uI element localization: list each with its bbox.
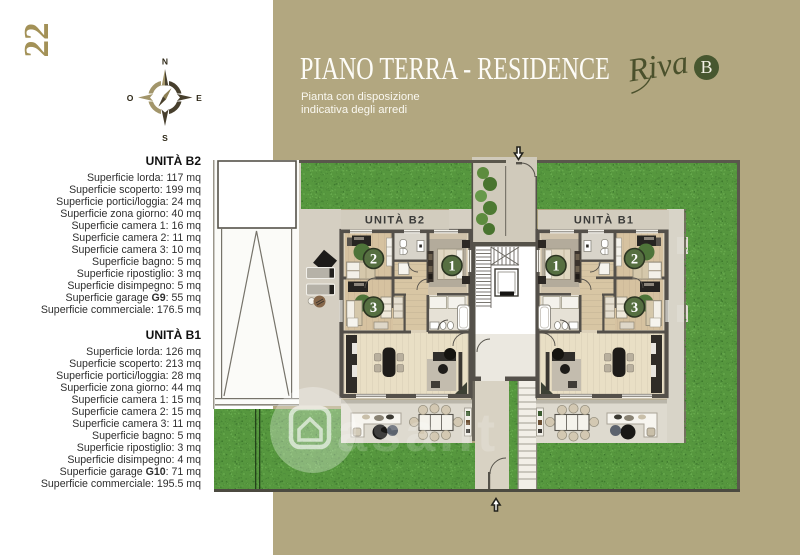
svg-text:2: 2 bbox=[631, 252, 638, 268]
svg-text:3: 3 bbox=[370, 300, 377, 316]
svg-text:E: E bbox=[196, 93, 202, 103]
svg-text:3: 3 bbox=[631, 300, 638, 316]
svg-text:O: O bbox=[127, 93, 134, 103]
svg-text:1: 1 bbox=[552, 259, 559, 275]
svg-text:N: N bbox=[162, 57, 168, 67]
svg-text:1: 1 bbox=[448, 259, 455, 275]
svg-text:2: 2 bbox=[370, 252, 377, 268]
svg-text:S: S bbox=[162, 133, 168, 143]
svg-text:UNITÀ B2: UNITÀ B2 bbox=[365, 214, 425, 227]
svg-text:asa.it: asa.it bbox=[337, 403, 499, 463]
svg-text:UNITÀ B1: UNITÀ B1 bbox=[574, 214, 634, 227]
